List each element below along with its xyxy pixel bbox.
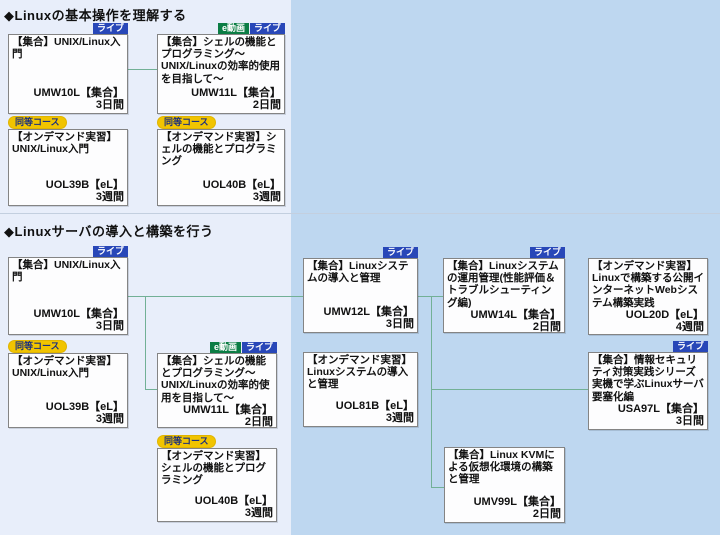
connector-line [128, 296, 303, 297]
course-code: UOL40B【eL】 [161, 179, 281, 192]
course-title: 【集合】UNIX/Linux入門 [12, 36, 124, 87]
course-uol40b-basic[interactable]: 同等コース 【オンデマンド実習】シェルの機能とプログラミング UOL40B【eL… [157, 117, 285, 206]
course-title: 【オンデマンド実習】Linuxで構築する公開インターネットWebシステム構築実践 [592, 260, 704, 309]
course-title: 【オンデマンド実習】Linuxシステムの導入と管理 [307, 354, 414, 400]
course-title: 【オンデマンド実習】シェルの機能とプログラミング [161, 450, 273, 495]
course-title: 【集合】UNIX/Linux入門 [12, 259, 124, 308]
connector-line [145, 296, 146, 389]
course-duration: 3日間 [12, 320, 124, 333]
course-code: UMV99L【集合】 [448, 496, 561, 509]
live-badge: ライブ [242, 342, 277, 353]
course-duration: 4週間 [592, 321, 704, 334]
course-duration: 3週間 [12, 191, 124, 204]
course-code: UOL39B【eL】 [12, 401, 124, 414]
course-title: 【オンデマンド実習】UNIX/Linux入門 [12, 131, 124, 179]
course-uol40b-server[interactable]: 同等コース 【オンデマンド実習】シェルの機能とプログラミング UOL40B【eL… [157, 436, 277, 522]
course-code: USA97L【集合】 [592, 403, 704, 416]
equivalent-course-badge: 同等コース [157, 435, 216, 448]
course-duration: 3週間 [12, 413, 124, 426]
course-title: 【集合】Linuxシステムの導入と管理 [307, 260, 414, 306]
equivalent-course-badge: 同等コース [8, 340, 67, 353]
course-uol20d[interactable]: 【オンデマンド実習】Linuxで構築する公開インターネットWebシステム構築実践… [588, 258, 708, 335]
course-duration: 2日間 [161, 99, 281, 112]
course-duration: 3週間 [161, 191, 281, 204]
live-badge: ライブ [530, 247, 565, 258]
course-umw12l[interactable]: ライブ 【集合】Linuxシステムの導入と管理 UMW12L【集合】 3日間 [303, 246, 418, 333]
course-duration: 3週間 [161, 507, 273, 520]
equivalent-course-badge: 同等コース [8, 116, 67, 129]
live-badge: ライブ [250, 23, 285, 34]
course-umw11l-basic[interactable]: e動画 ライブ 【集合】シェルの機能とプログラミング～UNIX/Linuxの効率… [157, 22, 285, 114]
connector-line [431, 487, 444, 488]
course-duration: 3日間 [592, 415, 704, 428]
evideo-badge: e動画 [218, 23, 249, 34]
course-duration: 3週間 [307, 412, 414, 425]
course-title: 【集合】シェルの機能とプログラミング～UNIX/Linuxの効率的使用を目指して… [161, 355, 273, 404]
course-umw10l-basic[interactable]: ライブ 【集合】UNIX/Linux入門 UMW10L【集合】 3日間 [8, 22, 128, 114]
course-code: UMW12L【集合】 [307, 306, 414, 319]
course-uol81b[interactable]: 【オンデマンド実習】Linuxシステムの導入と管理 UOL81B【eL】 3週間 [303, 352, 418, 427]
course-title: 【集合】シェルの機能とプログラミング～UNIX/Linuxの効率的使用を目指して… [161, 36, 281, 87]
course-title: 【集合】Linux KVMによる仮想化環境の構築と管理 [448, 449, 561, 496]
connector-line [431, 389, 588, 390]
course-title: 【集合】Linuxシステムの運用管理(性能評価＆トラブルシューティング編) [447, 260, 561, 309]
live-badge: ライブ [383, 247, 418, 258]
curriculum-flow-diagram: ◆Linuxの基本操作を理解する ◆Linuxサーバの導入と構築を行う ライブ … [0, 0, 720, 535]
equivalent-course-badge: 同等コース [157, 116, 216, 129]
course-umv99l[interactable]: 【集合】Linux KVMによる仮想化環境の構築と管理 UMV99L【集合】 2… [444, 447, 565, 523]
course-duration: 2日間 [448, 508, 561, 521]
live-badge: ライブ [93, 23, 128, 34]
course-uol39b-basic[interactable]: 同等コース 【オンデマンド実習】UNIX/Linux入門 UOL39B【eL】 … [8, 117, 128, 206]
course-umw14l[interactable]: ライブ 【集合】Linuxシステムの運用管理(性能評価＆トラブルシューティング編… [443, 246, 565, 333]
course-code: UMW14L【集合】 [447, 309, 561, 322]
course-code: UOL20D【eL】 [592, 309, 704, 322]
course-code: UOL39B【eL】 [12, 179, 124, 192]
course-code: UOL40B【eL】 [161, 495, 273, 508]
course-duration: 3日間 [307, 318, 414, 331]
course-title: 【オンデマンド実習】シェルの機能とプログラミング [161, 131, 281, 179]
course-code: UMW11L【集合】 [161, 87, 281, 100]
course-code: UMW10L【集合】 [12, 308, 124, 321]
connector-line [431, 296, 432, 487]
course-duration: 2日間 [161, 416, 273, 428]
connector-line [128, 69, 157, 70]
course-duration: 3日間 [12, 99, 124, 112]
course-umw11l-server[interactable]: e動画 ライブ 【集合】シェルの機能とプログラミング～UNIX/Linuxの効率… [157, 341, 277, 428]
live-badge: ライブ [673, 341, 708, 352]
live-badge: ライブ [93, 246, 128, 257]
section-title-server: ◆Linuxサーバの導入と構築を行う [4, 221, 214, 240]
course-title: 【集合】情報セキュリティ対策実践シリーズ 実機で学ぶLinuxサーバ要塞化編 [592, 354, 704, 403]
course-code: UMW11L【集合】 [161, 404, 273, 417]
section-divider [0, 213, 720, 214]
course-code: UMW10L【集合】 [12, 87, 124, 100]
course-uol39b-server[interactable]: 同等コース 【オンデマンド実習】UNIX/Linux入門 UOL39B【eL】 … [8, 341, 128, 428]
course-title: 【オンデマンド実習】UNIX/Linux入門 [12, 355, 124, 401]
evideo-badge: e動画 [210, 342, 241, 353]
course-duration: 2日間 [447, 321, 561, 333]
course-umw10l-server[interactable]: ライブ 【集合】UNIX/Linux入門 UMW10L【集合】 3日間 [8, 245, 128, 335]
course-usa97l[interactable]: ライブ 【集合】情報セキュリティ対策実践シリーズ 実機で学ぶLinuxサーバ要塞… [588, 340, 708, 430]
connector-line [145, 389, 157, 390]
course-code: UOL81B【eL】 [307, 400, 414, 413]
